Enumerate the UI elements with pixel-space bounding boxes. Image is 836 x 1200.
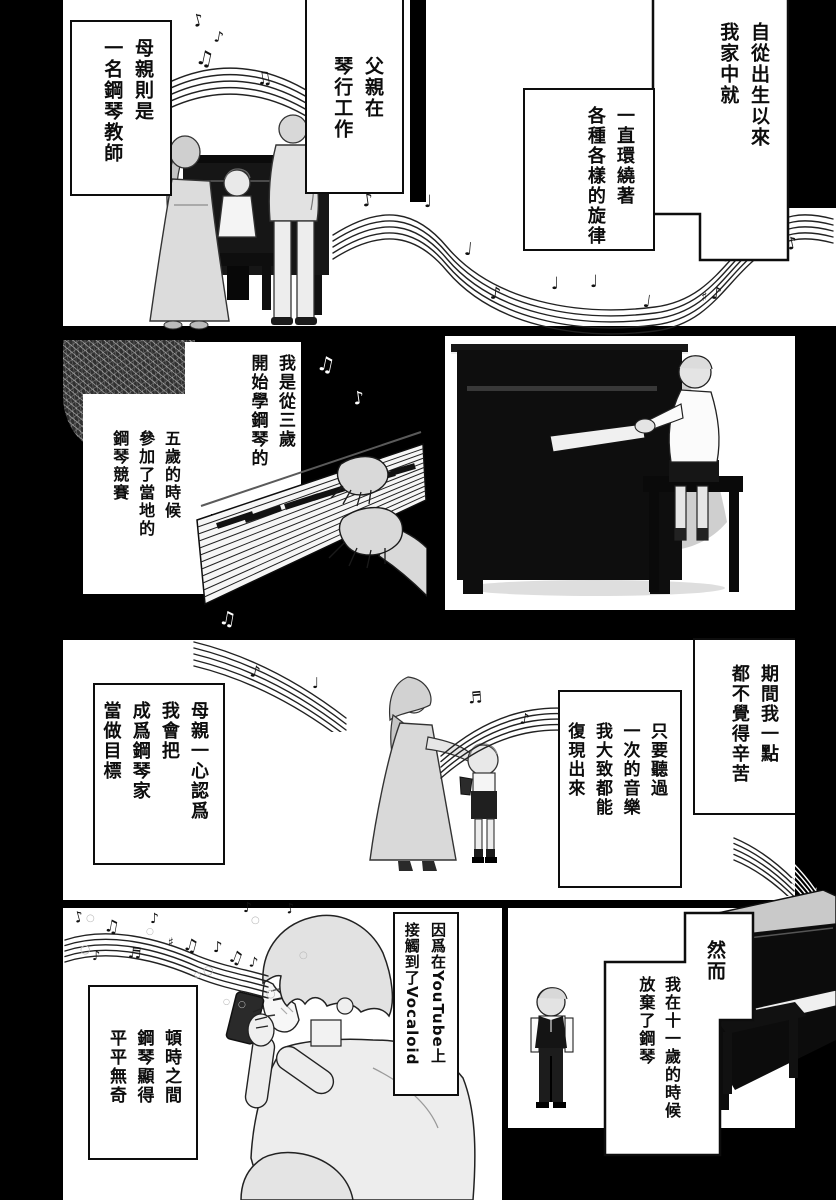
sparkle-icon: ○: [86, 914, 95, 924]
bubble-however: 然而: [700, 940, 730, 1004]
eighth-note-icon: ♪: [489, 285, 502, 303]
beamed-note-icon: ♫: [217, 609, 237, 631]
sparkle-icon: ○: [299, 951, 308, 961]
beamed-note-icon: ♫: [103, 918, 121, 937]
beamed-sixteenth-icon: ♬: [127, 945, 142, 961]
eighth-note-icon: ♪: [213, 940, 223, 955]
eighth-note-icon: ♪: [285, 901, 296, 916]
sparkle-icon: ○: [146, 928, 154, 937]
beamed-note-icon: ♫: [255, 69, 274, 90]
sparkle-icon: ○: [251, 916, 260, 926]
bubble-mother: 母親則是 一名鋼琴教師: [70, 20, 172, 196]
panel-divider-bar: [410, 0, 426, 202]
bubble-replay: 只要聽過 一次的音樂 我大致都能 復現出來: [558, 690, 682, 888]
sparkle-icon: ○: [203, 964, 213, 976]
boy-piano-illustration: [445, 336, 795, 610]
sparkle-icon: ○: [194, 971, 201, 979]
sharp-icon: ♯: [701, 291, 707, 304]
sparkle-icon: ○: [266, 988, 276, 999]
manga-page: 自從出生以來 我家中就 一直環繞著 各種各樣的旋律 母親則是 一名鋼琴教師 父親…: [0, 0, 836, 1200]
quarter-note-icon: ♩: [590, 274, 598, 291]
bubble-father: 父親在 琴行工作: [305, 0, 404, 194]
eighth-note-icon: ♪: [92, 950, 100, 963]
bubble-goal: 母親一心認爲 我會把 成爲鋼琴家 當做目標: [93, 683, 225, 865]
bubble-contest: 五歲的時候 參加了當地的 鋼琴競賽: [104, 430, 184, 580]
bubble-start-piano: 我是從三歲 開始學鋼琴的: [216, 354, 298, 494]
sparkle-icon: ○: [238, 1001, 246, 1010]
standing-boy-illustration: [513, 986, 603, 1128]
panel-boy-at-piano: [445, 336, 795, 610]
quarter-note-icon: ♩: [551, 276, 559, 293]
eighth-note-icon: ♪: [352, 389, 366, 408]
bubble-effort: 期間我一點 都不覺得辛苦: [693, 638, 795, 815]
beamed-sixteenth-icon: ♬: [467, 689, 483, 706]
bubble-birth: 自從出生以來 我家中就: [668, 22, 774, 212]
eighth-note-icon: ♪: [361, 191, 375, 210]
bubble-plain: 頓時之間 鋼琴顯得 平平無奇: [88, 985, 198, 1160]
eighth-note-icon: ♪: [519, 711, 531, 727]
bubble-quit: 我在十一歲的時候 放棄了鋼琴: [628, 976, 684, 1154]
sparkle-icon: ○: [223, 998, 230, 1006]
sparkle-icon: ○: [80, 943, 90, 955]
eighth-note-icon: ♪: [243, 901, 252, 915]
bubble-youtube: 因爲在YouTube上 接觸到了Vocaloid: [393, 912, 459, 1096]
eighth-note-icon: ♪: [710, 286, 722, 304]
bubble-melody: 一直環繞著 各種各樣的旋律: [523, 88, 655, 251]
sharp-icon: ♯: [168, 936, 174, 948]
top-right-margin: [789, 0, 836, 208]
eighth-note-icon: ♪: [150, 912, 159, 926]
panel-quit-piano: 然而 我在十一歲的時候 放棄了鋼琴: [508, 908, 795, 1128]
quarter-note-icon: ♩: [463, 241, 473, 260]
quarter-note-icon: ♩: [312, 676, 319, 691]
